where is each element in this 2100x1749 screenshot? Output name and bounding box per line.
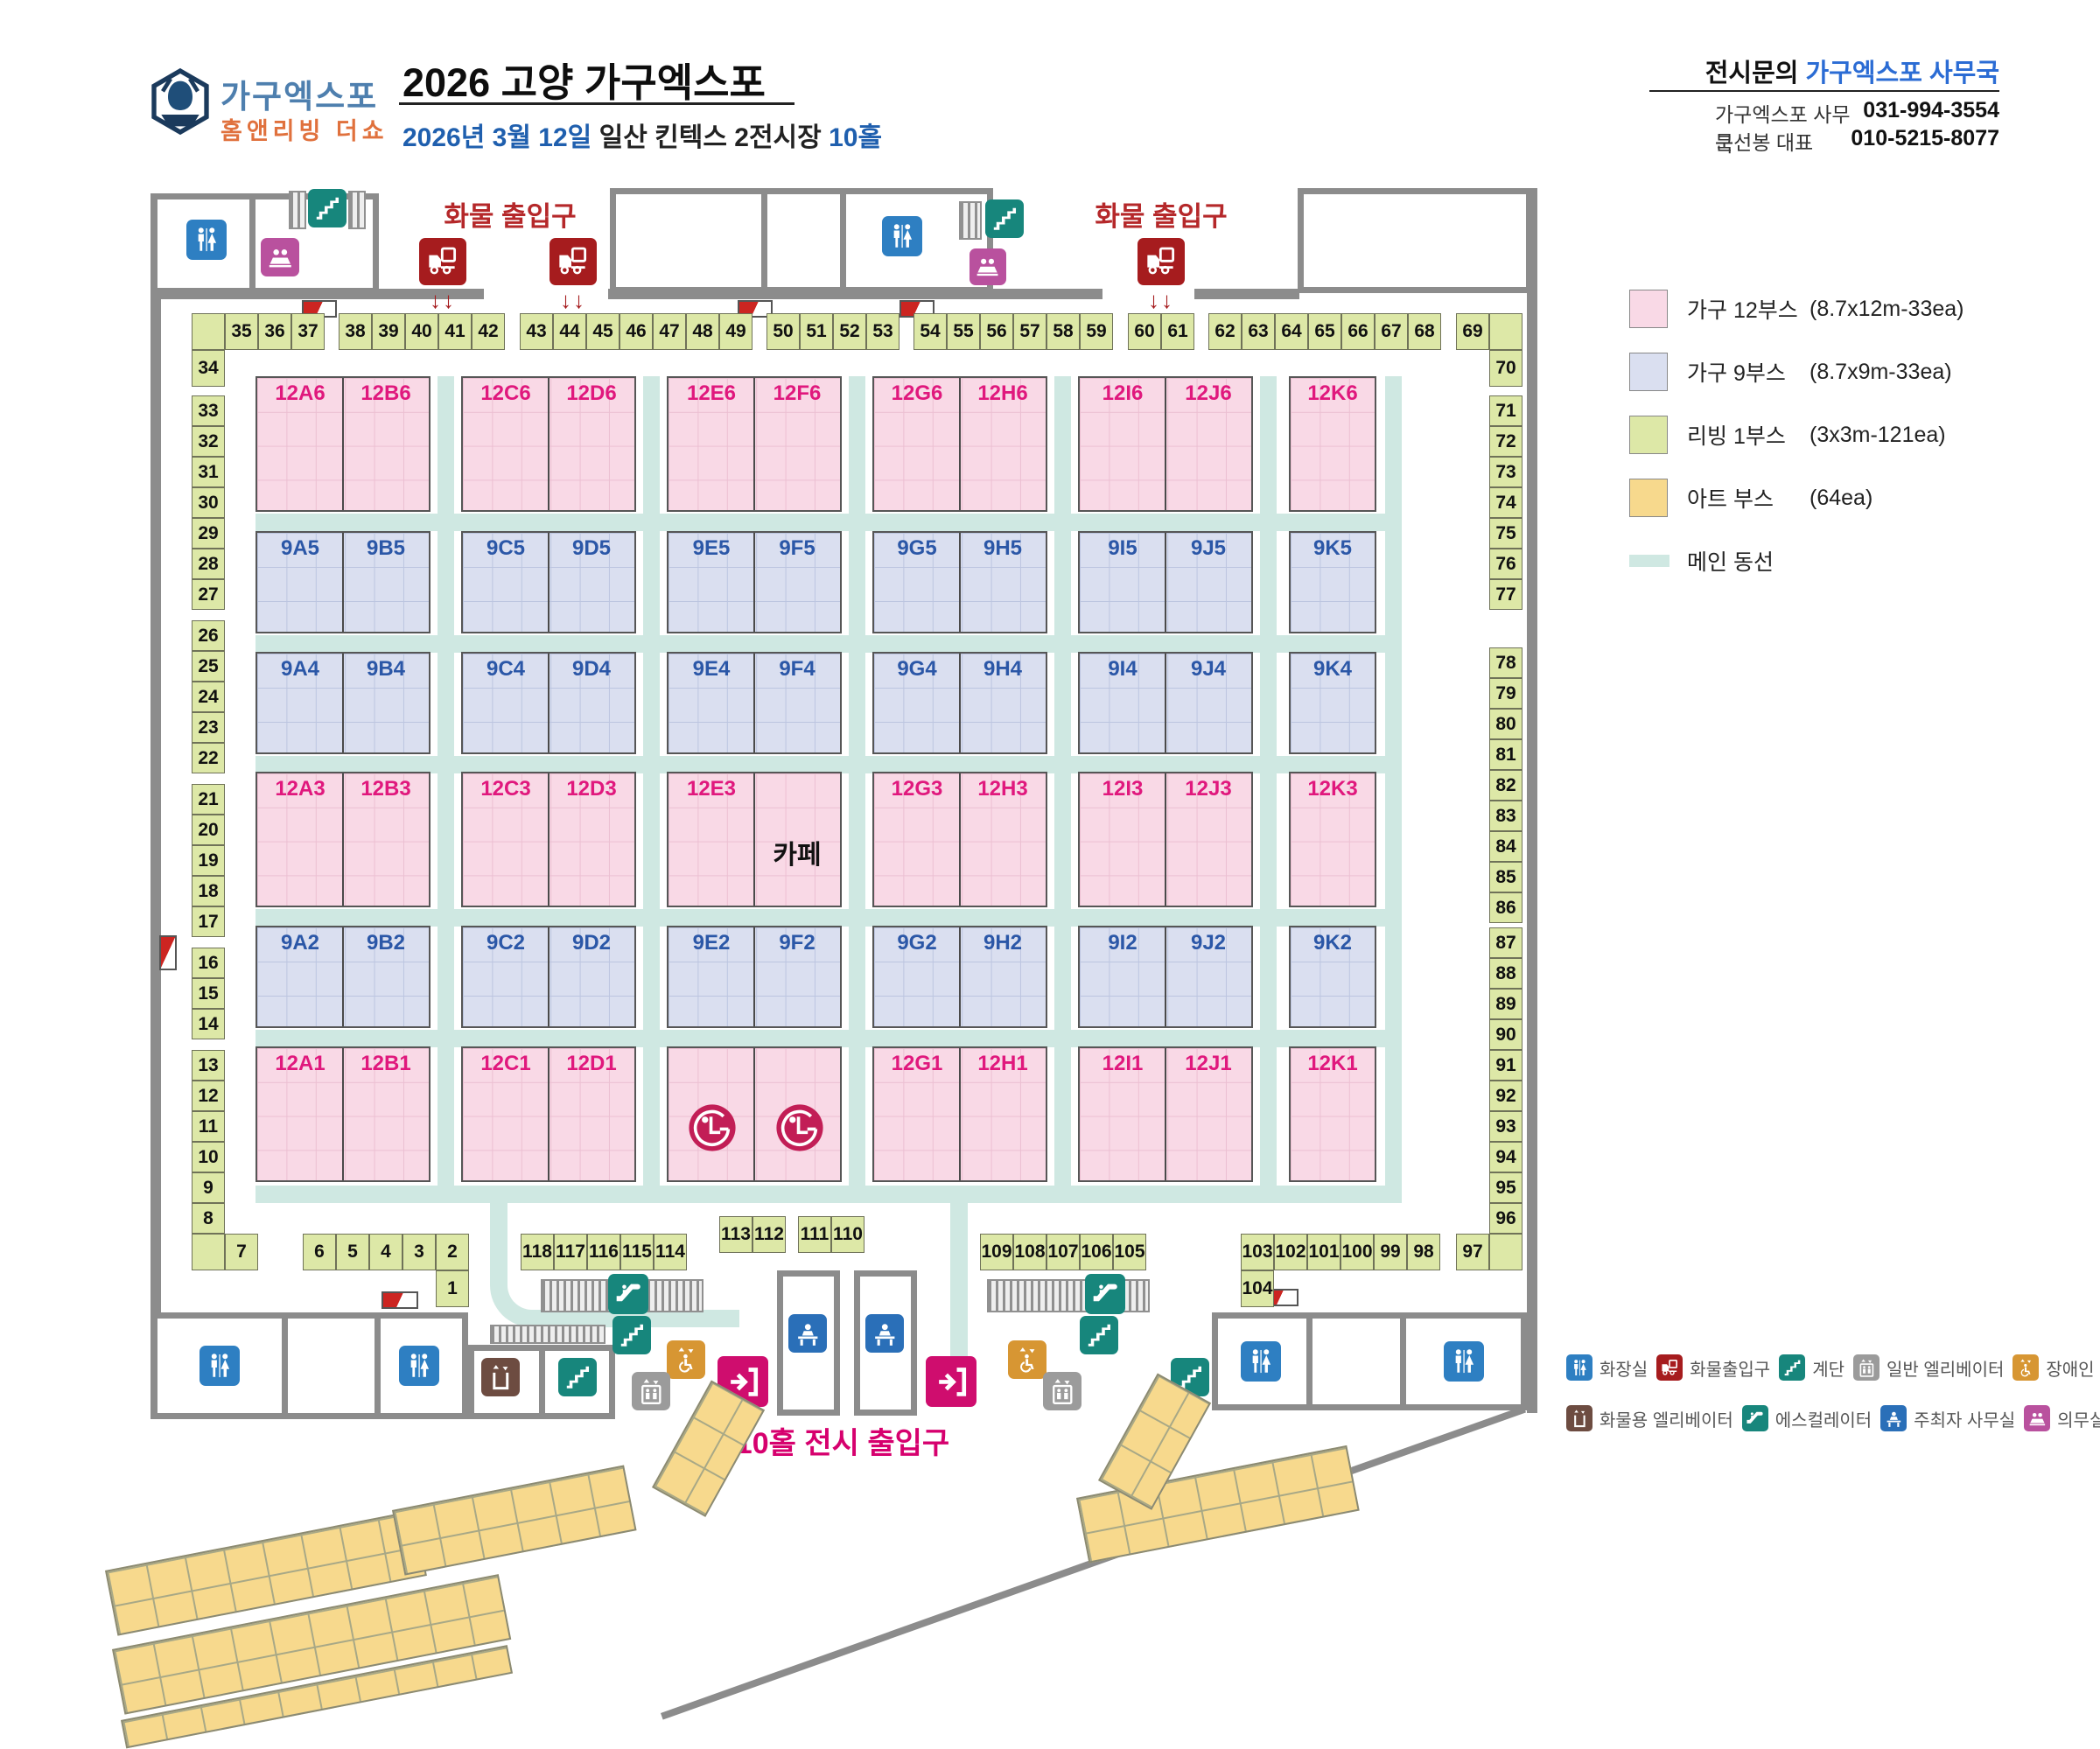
booth-label: 9A2 xyxy=(257,931,343,955)
room-divider xyxy=(1306,1312,1312,1410)
toilet-icon xyxy=(1444,1341,1484,1382)
icon-legend-item: 계단 xyxy=(1779,1354,1844,1381)
living-booth-bottom: 97 xyxy=(1456,1234,1489,1270)
living-booth-top: 40 xyxy=(405,313,438,350)
floorplan: ↓↓↓↓↓↓12A612B612C612D612E612F612G612H612… xyxy=(0,0,2100,1749)
main-aisle-v xyxy=(950,1203,968,1361)
living-booth-left: 14 xyxy=(192,1009,225,1039)
booth-label: 9B5 xyxy=(343,536,429,561)
outer-wall-left xyxy=(150,193,161,1419)
living-booth-top: 36 xyxy=(258,313,291,350)
booth-block: 12C112D1 xyxy=(461,1046,636,1182)
floorplan-page: 가구엑스포 홈앤리빙 더쇼 2026 고양 가구엑스포 2026년 3월 12일… xyxy=(0,0,2100,1749)
diagonal-wall xyxy=(661,1406,1526,1720)
living-booth-top: 41 xyxy=(438,313,472,350)
living-booth-left: 22 xyxy=(192,743,225,773)
legend-spec: (8.7x9m-33ea) xyxy=(1809,360,1952,385)
living-booth-left: 13 xyxy=(192,1050,225,1081)
booth-block: 12A112B1 xyxy=(255,1046,430,1182)
living-booth-bottom: 100 xyxy=(1340,1234,1374,1270)
booth-label: 12D1 xyxy=(549,1052,634,1076)
outer-wall-right xyxy=(1527,188,1537,1413)
booth-block: 12C612D6 xyxy=(461,376,636,512)
booth-block: 12G112H1 xyxy=(872,1046,1047,1182)
booth-label: 9F2 xyxy=(754,931,840,955)
legend-item-aisle: 메인 동선 xyxy=(1629,541,1809,581)
living-booth-top: 67 xyxy=(1375,313,1408,350)
living-booth-right: 93 xyxy=(1489,1111,1522,1142)
living-booth-left: 19 xyxy=(192,845,225,876)
elevator-icon xyxy=(1043,1372,1081,1410)
booth-block: 12G612H6 xyxy=(872,376,1047,512)
booth-label: 12I3 xyxy=(1080,777,1165,801)
living-booth-bottom: 6 xyxy=(303,1234,336,1270)
toilet-icon xyxy=(399,1346,439,1386)
truck-icon xyxy=(1656,1354,1683,1381)
elevator-disabled-icon xyxy=(1008,1340,1046,1379)
escalator-icon xyxy=(1742,1405,1768,1431)
living-booth-bottom: 102 xyxy=(1274,1234,1307,1270)
icon-legend-item: 화물출입구 xyxy=(1656,1354,1770,1381)
booth-label: 9F5 xyxy=(754,536,840,561)
truck-icon xyxy=(549,238,597,285)
stairs-icon xyxy=(1080,1316,1118,1354)
living-booth-left: 24 xyxy=(192,682,225,712)
booth-label: 12K6 xyxy=(1291,381,1375,406)
medical-icon xyxy=(969,248,1006,285)
booth-label: 9B2 xyxy=(343,931,429,955)
booth-label: 9C4 xyxy=(463,657,549,682)
booth-label: 9I4 xyxy=(1080,657,1165,682)
booth-block: 9A49B4 xyxy=(255,652,430,754)
cargo-arrows: ↓↓ xyxy=(1132,287,1190,314)
toilet-icon xyxy=(1566,1354,1592,1381)
living-booth-left: 26 xyxy=(192,620,225,651)
elevator-disabled-icon xyxy=(2012,1354,2039,1381)
booth-block: 12E612F6 xyxy=(667,376,842,512)
main-aisle-h xyxy=(255,1186,1402,1203)
living-booth-left: 34 xyxy=(192,350,225,387)
living-booth-bottom: 3 xyxy=(402,1234,436,1270)
living-booth-top: 49 xyxy=(719,313,752,350)
booth-label: 12B3 xyxy=(343,777,429,801)
living-booth-top: 55 xyxy=(947,313,980,350)
stairs-icon xyxy=(612,1316,651,1354)
icon-legend-item: 화물용 엘리베이터 xyxy=(1566,1405,1733,1431)
booth-label: 9D4 xyxy=(549,657,634,682)
booth-label: 9I2 xyxy=(1080,931,1165,955)
elevator-cargo-icon xyxy=(1566,1405,1592,1431)
toilet-icon xyxy=(186,220,227,260)
room-divider xyxy=(374,1312,381,1419)
booth-block: 9C29D2 xyxy=(461,926,636,1028)
room-divider xyxy=(840,188,846,293)
booth-label: 12G1 xyxy=(874,1052,960,1076)
living-booth-bottom: 108 xyxy=(1013,1234,1046,1270)
living-booth-bottom: 118 xyxy=(521,1234,554,1270)
booth-block: 12K1 xyxy=(1289,1046,1376,1182)
booth-label: 12C3 xyxy=(463,777,549,801)
office-icon xyxy=(1880,1405,1907,1431)
living-booth-left: 29 xyxy=(192,518,225,549)
living-booth-top: 57 xyxy=(1013,313,1046,350)
living-booth-bottom: 117 xyxy=(554,1234,587,1270)
lg-logo-icon xyxy=(687,1102,738,1153)
legend-swatch-pink xyxy=(1629,290,1668,328)
toilet-icon xyxy=(882,216,922,256)
booth-label: 9C5 xyxy=(463,536,549,561)
living-booth-left: 8 xyxy=(192,1203,225,1234)
booth-block: 9I59J5 xyxy=(1078,531,1253,633)
living-booth-left: 20 xyxy=(192,815,225,845)
living-booth-top: 42 xyxy=(472,313,505,350)
booth-block: 9I49J4 xyxy=(1078,652,1253,754)
icon-legend-item: 주최자 사무실 xyxy=(1880,1405,2015,1431)
living-booth-right: 82 xyxy=(1489,770,1522,801)
legend-swatch-green xyxy=(1629,416,1668,454)
legend-item-green: 리빙 1부스(3x3m-121ea) xyxy=(1629,415,1946,455)
booth-label: 9E5 xyxy=(668,536,754,561)
living-booth-right: 87 xyxy=(1489,927,1522,958)
living-booth-top: 37 xyxy=(291,313,325,350)
booth-block: 9K5 xyxy=(1289,531,1376,633)
living-booth-right: 83 xyxy=(1489,801,1522,831)
living-booth-left: 10 xyxy=(192,1142,225,1172)
living-booth-top: 50 xyxy=(766,313,800,350)
living-booth-right: 90 xyxy=(1489,1019,1522,1050)
stairs-icon xyxy=(985,199,1024,238)
living-booth-top: 53 xyxy=(866,313,899,350)
lg-logo-icon xyxy=(774,1102,825,1153)
icon-legend-item: 일반 엘리베이터 xyxy=(1853,1354,2004,1381)
living-booth-top xyxy=(1489,313,1522,350)
room-divider xyxy=(282,1312,288,1419)
living-booth-top: 69 xyxy=(1456,313,1489,350)
booth-label: 12C6 xyxy=(463,381,549,406)
icon-legend-label: 계단 xyxy=(1812,1355,1844,1381)
booth-label: 12H1 xyxy=(960,1052,1046,1076)
living-booth-left: 27 xyxy=(192,579,225,610)
living-booth-bottom: 114 xyxy=(654,1234,687,1270)
booth-block: 9E49F4 xyxy=(667,652,842,754)
living-booth-right: 73 xyxy=(1489,457,1522,487)
booth-label: 12G6 xyxy=(874,381,960,406)
booth-label: 12I6 xyxy=(1080,381,1165,406)
booth-block: 12I312J3 xyxy=(1078,772,1253,907)
booth-label: 9J5 xyxy=(1165,536,1251,561)
legend-item-blue: 가구 9부스(8.7x9m-33ea) xyxy=(1629,352,1952,392)
living-booth-top: 38 xyxy=(339,313,372,350)
living-booth-top: 64 xyxy=(1275,313,1308,350)
living-booth-bottom: 105 xyxy=(1113,1234,1146,1270)
living-booth-bottom: 112 xyxy=(752,1216,786,1253)
booth-label: 9J2 xyxy=(1165,931,1251,955)
booth-block: 9C49D4 xyxy=(461,652,636,754)
booth-label: 12H6 xyxy=(960,381,1046,406)
booth-label: 12I1 xyxy=(1080,1052,1165,1076)
elevator-icon xyxy=(1853,1354,1879,1381)
living-booth-top: 46 xyxy=(619,313,653,350)
living-booth-left: 23 xyxy=(192,712,225,743)
living-booth-right: 74 xyxy=(1489,487,1522,518)
booth-label: 9E4 xyxy=(668,657,754,682)
elevator-shaft-hatch xyxy=(490,1325,605,1344)
legend-label: 가구 12부스 xyxy=(1687,293,1809,325)
booth-label: 9H5 xyxy=(960,536,1046,561)
booth-block: 12I112J1 xyxy=(1078,1046,1253,1182)
icon-legend-row: 화장실화물출입구계단일반 엘리베이터장애인 엘리베이터 xyxy=(1566,1354,2056,1381)
legend-label: 아트 부스 xyxy=(1687,482,1809,514)
living-booth-top: 39 xyxy=(372,313,405,350)
living-booth-top xyxy=(192,313,225,350)
booth-block xyxy=(667,1046,842,1182)
living-booth-top: 63 xyxy=(1242,313,1275,350)
booth-label: 9J4 xyxy=(1165,657,1251,682)
living-booth-right: 89 xyxy=(1489,989,1522,1019)
escalator-icon xyxy=(1085,1274,1125,1314)
living-booth-top: 56 xyxy=(980,313,1013,350)
cafe-label: 카페 xyxy=(754,833,840,871)
living-booth-top: 43 xyxy=(520,313,553,350)
legend-label: 가구 9부스 xyxy=(1687,356,1809,388)
living-booth-top: 66 xyxy=(1341,313,1375,350)
living-booth-left: 15 xyxy=(192,978,225,1009)
booth-label: 9C2 xyxy=(463,931,549,955)
booth-label: 12A3 xyxy=(257,777,343,801)
booth-label: 12A6 xyxy=(257,381,343,406)
booth-label: 12F6 xyxy=(754,381,840,406)
main-aisle-h xyxy=(255,1030,1402,1047)
booth-label: 12E3 xyxy=(668,777,754,801)
living-booth-right: 78 xyxy=(1489,647,1522,678)
living-booth-top: 54 xyxy=(913,313,947,350)
booth-block: 9I29J2 xyxy=(1078,926,1253,1028)
living-booth-left: 9 xyxy=(192,1172,225,1203)
legend-spec: (64ea) xyxy=(1809,486,1872,511)
booth-label: 12H3 xyxy=(960,777,1046,801)
toilet-icon xyxy=(1241,1341,1281,1382)
booth-block: 12K6 xyxy=(1289,376,1376,512)
booth-block: 9A29B2 xyxy=(255,926,430,1028)
booth-block: 12E3카페 xyxy=(667,772,842,907)
living-booth-bottom: 101 xyxy=(1307,1234,1340,1270)
escalator-icon xyxy=(608,1274,648,1314)
living-booth-top: 59 xyxy=(1080,313,1113,350)
living-booth-left: 31 xyxy=(192,457,225,487)
booth-block: 9K4 xyxy=(1289,652,1376,754)
living-booth-bottom: 4 xyxy=(369,1234,402,1270)
main-aisle-v xyxy=(1385,376,1402,1203)
living-booth-left: 32 xyxy=(192,426,225,457)
booth-block: 9E29F2 xyxy=(667,926,842,1028)
living-booth-right: 72 xyxy=(1489,426,1522,457)
elevator-cargo-icon xyxy=(481,1358,520,1396)
icon-legend-label: 화물용 엘리베이터 xyxy=(1599,1406,1733,1431)
top-wall xyxy=(990,289,1102,299)
booth-label: 9I5 xyxy=(1080,536,1165,561)
elevator-icon xyxy=(632,1372,670,1410)
booth-label: 9B4 xyxy=(343,657,429,682)
booth-label: 9E2 xyxy=(668,931,754,955)
main-aisle-h xyxy=(255,514,1402,531)
living-booth-right: 71 xyxy=(1489,395,1522,426)
legend-spec: (8.7x12m-33ea) xyxy=(1809,297,1963,322)
medical-icon xyxy=(261,238,299,276)
living-booth-right: 88 xyxy=(1489,958,1522,989)
booth-block: 12G312H3 xyxy=(872,772,1047,907)
booth-label: 9K2 xyxy=(1291,931,1375,955)
icon-legend-item: 화장실 xyxy=(1566,1354,1648,1381)
booth-label: 9H4 xyxy=(960,657,1046,682)
legend-item-pink: 가구 12부스(8.7x12m-33ea) xyxy=(1629,289,1963,329)
top-wall xyxy=(1194,289,1299,299)
room-divider xyxy=(539,1345,545,1419)
living-booth-right: 81 xyxy=(1489,739,1522,770)
booth-label: 12E6 xyxy=(668,381,754,406)
living-booth-bottom: 1 xyxy=(436,1270,469,1307)
living-booth-top: 35 xyxy=(225,313,258,350)
truck-icon xyxy=(1137,238,1185,285)
icon-legend-label: 의무실 xyxy=(2057,1406,2100,1431)
living-booth-left: 17 xyxy=(192,906,225,937)
living-booth-bottom: 107 xyxy=(1046,1234,1080,1270)
booth-label: 12C1 xyxy=(463,1052,549,1076)
booth-block: 9C59D5 xyxy=(461,531,636,633)
living-booth-bottom: 111 xyxy=(798,1216,831,1253)
booth-block: 9G59H5 xyxy=(872,531,1047,633)
living-booth-bottom: 115 xyxy=(620,1234,654,1270)
living-booth-left: 28 xyxy=(192,549,225,579)
room-divider xyxy=(249,193,255,294)
legend-swatch-aisle xyxy=(1629,555,1669,567)
booth-block: 9E59F5 xyxy=(667,531,842,633)
living-booth-top: 44 xyxy=(553,313,586,350)
booth-block: 12I612J6 xyxy=(1078,376,1253,512)
toilet-icon xyxy=(199,1346,240,1386)
stairs-icon xyxy=(1779,1354,1805,1381)
elevator-shaft-hatch xyxy=(959,201,982,240)
icon-legend-label: 일반 엘리베이터 xyxy=(1886,1355,2004,1381)
living-booth-top: 52 xyxy=(833,313,866,350)
living-booth-bottom: 5 xyxy=(336,1234,369,1270)
living-booth-right: 91 xyxy=(1489,1050,1522,1081)
truck-icon xyxy=(419,238,466,285)
living-booth-right: 84 xyxy=(1489,831,1522,862)
living-booth-bottom: 113 xyxy=(719,1216,752,1253)
art-booth-strip xyxy=(392,1465,637,1575)
living-booth-right: 86 xyxy=(1489,892,1522,923)
icon-legend-label: 에스컬레이터 xyxy=(1775,1406,1872,1431)
living-booth-left: 21 xyxy=(192,784,225,815)
booth-block: 9G29H2 xyxy=(872,926,1047,1028)
living-booth-right: 70 xyxy=(1489,350,1522,387)
main-aisle-v xyxy=(1054,376,1071,1203)
stairs-icon xyxy=(308,189,346,227)
living-booth-right: 94 xyxy=(1489,1142,1522,1172)
booth-block: 12A312B3 xyxy=(255,772,430,907)
booth-label: 12B6 xyxy=(343,381,429,406)
booth-label: 9K5 xyxy=(1291,536,1375,561)
living-booth-right: 92 xyxy=(1489,1081,1522,1111)
main-aisle-v xyxy=(643,376,660,1203)
icon-legend-label: 장애인 엘리베이터 xyxy=(2046,1355,2100,1381)
fire-hydrant-icon xyxy=(381,1291,418,1309)
booth-label: 12D3 xyxy=(549,777,634,801)
icon-legend-label: 주최자 사무실 xyxy=(1914,1406,2015,1431)
living-booth-top: 68 xyxy=(1408,313,1441,350)
cargo-arrows: ↓↓ xyxy=(544,287,602,314)
medical-icon xyxy=(2024,1405,2050,1431)
living-booth-bottom: 104 xyxy=(1241,1270,1274,1307)
icon-legend-row: 화물용 엘리베이터에스컬레이터주최자 사무실의무실소화전 xyxy=(1566,1405,2056,1431)
booth-label: 9G2 xyxy=(874,931,960,955)
living-booth-bottom: 98 xyxy=(1407,1234,1440,1270)
living-booth-top: 65 xyxy=(1308,313,1341,350)
living-booth-left: 16 xyxy=(192,948,225,978)
booth-block: 12K3 xyxy=(1289,772,1376,907)
room-divider xyxy=(761,188,767,293)
booth-label: 12K3 xyxy=(1291,777,1375,801)
booth-label: 12D6 xyxy=(549,381,634,406)
legend-label: 리빙 1부스 xyxy=(1687,419,1809,451)
booth-label: 9F4 xyxy=(754,657,840,682)
elevator-shaft-hatch xyxy=(289,191,306,229)
living-booth-right: 76 xyxy=(1489,549,1522,579)
booth-label: 9K4 xyxy=(1291,657,1375,682)
main-aisle-v xyxy=(849,376,865,1203)
living-booth-bottom: 99 xyxy=(1374,1234,1407,1270)
legend-item-amber: 아트 부스(64ea) xyxy=(1629,478,1872,518)
top-room-center xyxy=(610,188,993,293)
main-aisle-h xyxy=(255,635,1402,653)
living-booth-top: 58 xyxy=(1046,313,1080,350)
booth-label: 12J3 xyxy=(1165,777,1251,801)
living-booth-left: 25 xyxy=(192,651,225,682)
booth-label: 9D2 xyxy=(549,931,634,955)
main-aisle-v xyxy=(1260,376,1277,1203)
booth-label: 9G4 xyxy=(874,657,960,682)
top-room-right xyxy=(1298,188,1532,293)
living-booth-right: 85 xyxy=(1489,862,1522,892)
living-booth-top: 47 xyxy=(653,313,686,350)
living-booth-right: 80 xyxy=(1489,709,1522,739)
living-booth-bottom: 116 xyxy=(587,1234,620,1270)
legend-spec: (3x3m-121ea) xyxy=(1809,423,1946,448)
living-booth-top: 62 xyxy=(1208,313,1242,350)
booth-label: 12K1 xyxy=(1291,1052,1375,1076)
stairs-icon xyxy=(558,1358,597,1396)
main-aisle-h xyxy=(255,909,1402,927)
icon-legend-item: 에스컬레이터 xyxy=(1742,1405,1872,1431)
elevator-disabled-icon xyxy=(667,1340,705,1379)
booth-label: 9G5 xyxy=(874,536,960,561)
icon-legend-label: 화장실 xyxy=(1599,1355,1648,1381)
booth-label: 12J1 xyxy=(1165,1052,1251,1076)
booth-block: 12C312D3 xyxy=(461,772,636,907)
booth-label: 12A1 xyxy=(257,1052,343,1076)
booth-label: 9A4 xyxy=(257,657,343,682)
living-booth-top: 61 xyxy=(1161,313,1194,350)
living-booth-bottom: 110 xyxy=(831,1216,864,1253)
living-booth-bottom: 109 xyxy=(980,1234,1013,1270)
room-divider xyxy=(1400,1312,1406,1410)
main-aisle-v xyxy=(437,376,454,1203)
icon-legend-item: 장애인 엘리베이터 xyxy=(2012,1354,2100,1381)
main-aisle-h xyxy=(255,756,1402,773)
living-booth-left: 33 xyxy=(192,395,225,426)
living-booth-bottom: 103 xyxy=(1241,1234,1274,1270)
entrance-icon xyxy=(926,1356,976,1407)
